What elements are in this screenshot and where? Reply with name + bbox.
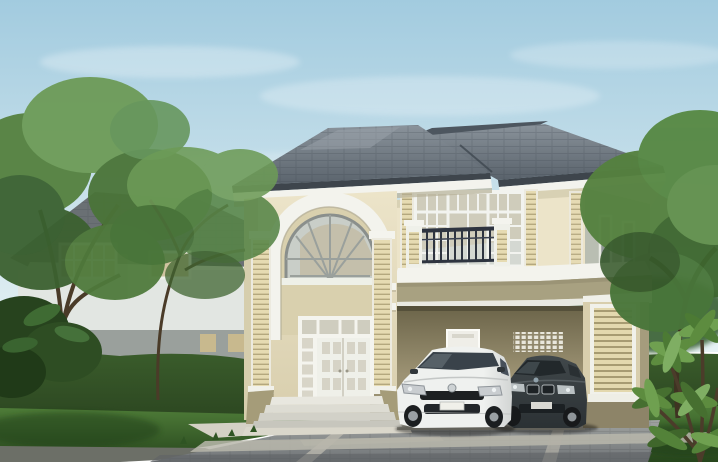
- balcony-post-right: [492, 218, 512, 268]
- house-rendering-image: [0, 0, 718, 462]
- bmw-badge: [534, 378, 539, 383]
- white-car-plate: [440, 402, 464, 410]
- balcony-post-left: [404, 220, 424, 270]
- dark-car-headlight-right: [557, 385, 575, 394]
- white-car-mirror-left: [410, 369, 418, 374]
- entry-door: [298, 316, 374, 404]
- upper-pilaster-right: [525, 190, 537, 270]
- vw-badge: [448, 384, 456, 392]
- door-sidelight: [302, 338, 313, 400]
- white-car-headlight-left: [402, 384, 426, 395]
- vent-blocks: [513, 332, 563, 352]
- white-car-headlight-right: [478, 386, 502, 396]
- dark-car-grille-right: [542, 385, 554, 394]
- dark-car-plate: [531, 402, 552, 409]
- dark-car-grille-left: [527, 385, 539, 394]
- white-car-mirror-right: [497, 367, 505, 372]
- rendering-canvas: [0, 0, 718, 462]
